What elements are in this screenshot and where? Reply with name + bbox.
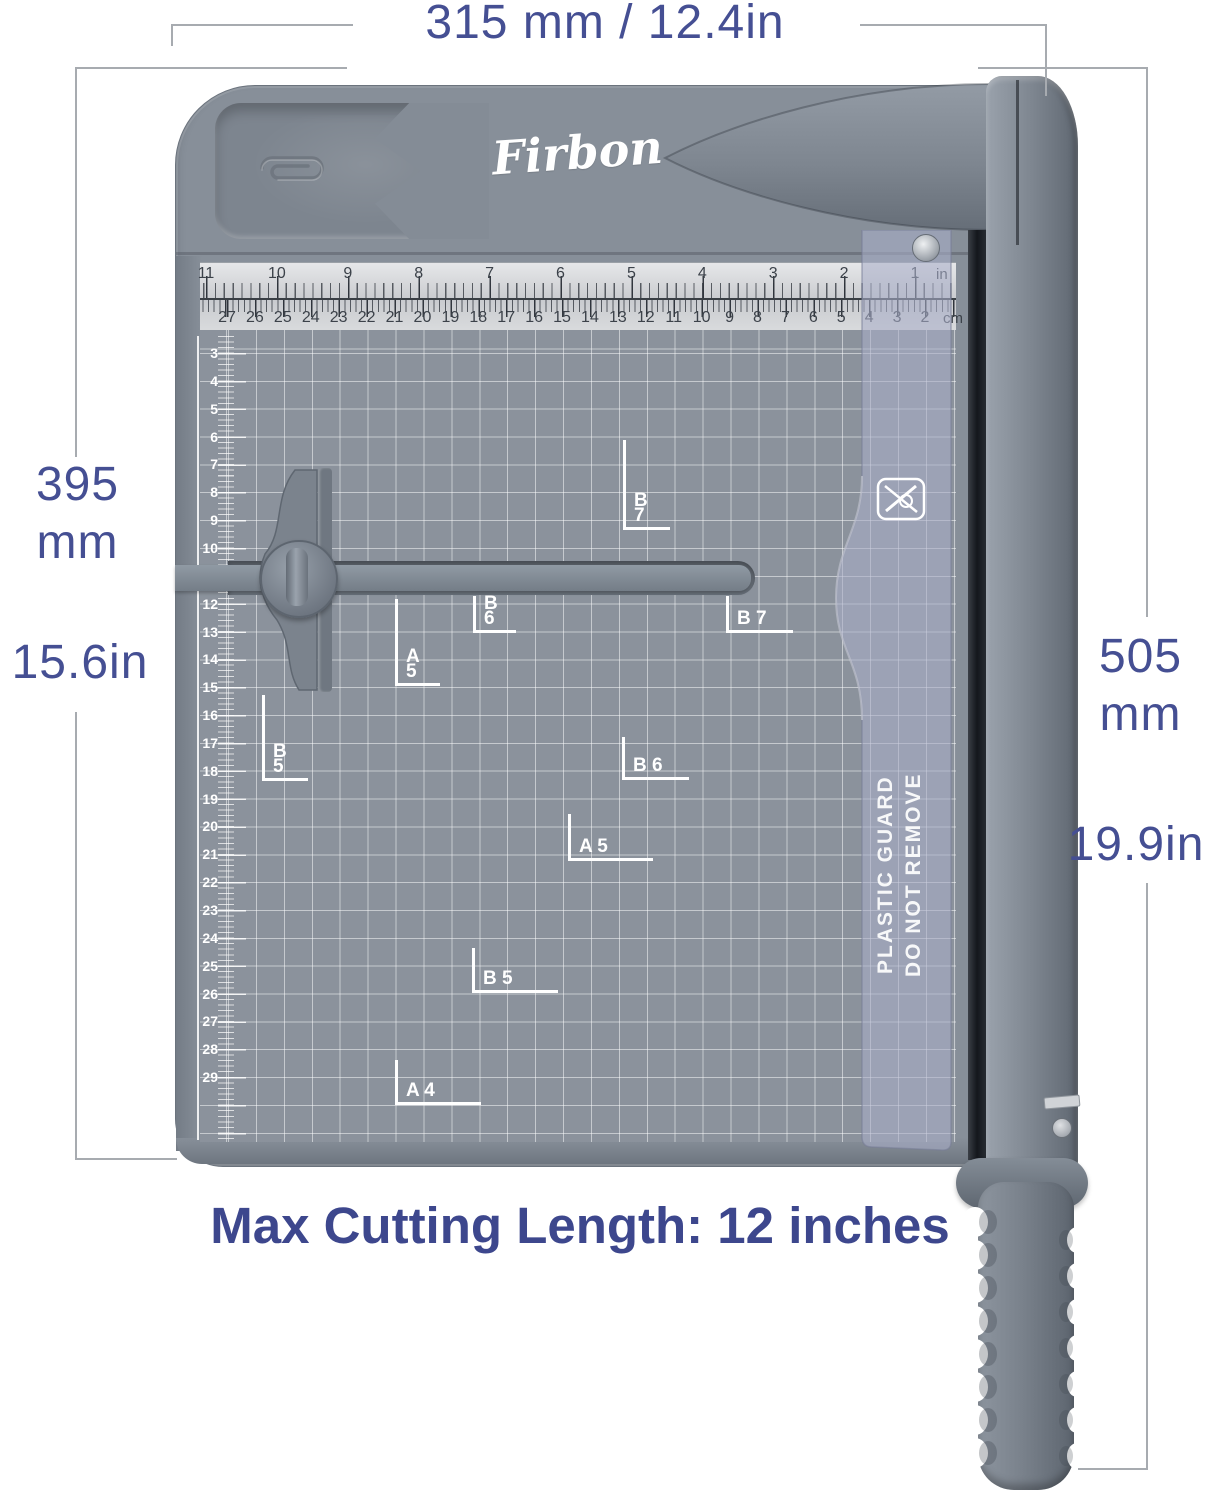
top-dim-line-left [171,24,353,26]
inch-number: 5 [627,265,636,283]
side-ruler-number: 22 [194,874,218,890]
inch-number: 4 [698,265,707,283]
side-ruler-number: 10 [194,540,218,556]
side-ruler-number: 25 [194,958,218,974]
size-mark-b7-stacked: B7 [623,440,670,530]
cm-number: 15 [553,309,571,327]
paperclip-icon [248,144,340,192]
size-mark-b7-inline: B 7 [726,596,793,633]
side-ruler-number: 5 [194,401,218,417]
side-ruler-number: 15 [194,679,218,695]
size-mark-a5-inline: A 5 [568,814,653,861]
side-ruler-number: 19 [194,791,218,807]
side-ruler-minor-ticks [218,336,234,1142]
inch-number: 7 [485,265,494,283]
side-ruler-number: 12 [194,596,218,612]
size-mark-b6-inline: B 6 [622,737,689,780]
side-ruler-number: 18 [194,763,218,779]
side-ruler-number: 26 [194,986,218,1002]
inch-number: 3 [769,265,778,283]
inch-number: 11 [198,265,215,283]
side-ruler-number: 28 [194,1041,218,1057]
right-dim-tick-bottom [1078,1468,1148,1470]
guard-screw [912,234,940,262]
cutting-arm[interactable] [986,76,1078,1171]
guard-warning-line2: PLASTIC GUARD [874,645,898,1105]
brand-logo: Firbon [490,120,653,185]
cm-number: 16 [525,309,543,327]
right-height-in-label: 19.9in [1055,816,1217,874]
cm-number: 26 [246,309,264,327]
hinge-cover [655,78,990,238]
top-dim-tick-right [1045,24,1047,96]
cm-number: 6 [809,309,818,327]
top-extension-line-right [978,67,1147,69]
cm-number: 12 [637,309,655,327]
cm-number: 22 [358,309,376,327]
top-extension-line-left [75,67,347,69]
side-ruler-number: 23 [194,902,218,918]
cm-number: 11 [665,309,682,327]
side-ruler-number: 3 [194,345,218,361]
left-height-mm-value: 395 [5,456,150,514]
right-dim-line-upper [1146,67,1148,617]
right-height-mm-unit: mm [1068,686,1213,744]
side-ruler-number: 4 [194,373,218,389]
right-height-mm-label: 505 mm [1068,628,1213,744]
knob-grip [286,548,308,606]
cm-number: 7 [781,309,790,327]
side-ruler-number: 17 [194,735,218,751]
side-ruler-number: 27 [194,1013,218,1029]
side-ruler-number: 24 [194,930,218,946]
size-mark-a5-stacked: A5 [395,599,440,686]
size-mark-b6-stacked: B6 [473,596,516,633]
product-dimension-diagram: Firbon 1110987654321in 27262524232221201… [0,0,1217,1500]
cm-number: 13 [609,309,627,327]
cm-number: 18 [469,309,487,327]
left-height-mm-label: 395 mm [5,456,150,572]
cm-number: 10 [693,309,711,327]
side-ruler-number: 8 [194,484,218,500]
cm-number: 27 [218,309,236,327]
side-ruler-number: 7 [194,456,218,472]
latch-bolt [1052,1118,1072,1138]
arm-seam [1016,80,1019,245]
cm-number: 8 [753,309,762,327]
right-height-mm-value: 505 [1068,628,1213,686]
cm-number: 19 [441,309,459,327]
cm-number: 23 [330,309,348,327]
left-height-in-label: 15.6in [0,634,160,692]
handle-finger-grooves [950,1175,1100,1500]
inch-number: 6 [556,265,565,283]
side-ruler-number: 29 [194,1069,218,1085]
side-ruler-number: 20 [194,818,218,834]
side-ruler-number: 9 [194,512,218,528]
size-mark-a4-inline: A 4 [395,1060,481,1105]
inch-number: 8 [414,265,423,283]
side-ruler-number: 21 [194,846,218,862]
guide-knob[interactable] [260,540,338,618]
left-height-mm-unit: mm [5,514,150,572]
cm-number: 14 [581,309,599,327]
cm-number: 17 [497,309,515,327]
blade-slot [968,230,988,1160]
top-dim-tick-left [171,24,173,46]
inch-number: 10 [268,265,286,283]
top-width-label: 315 mm / 12.4in [330,0,880,52]
side-ruler-number: 13 [194,624,218,640]
cm-number: 24 [302,309,320,327]
size-mark-b5-inline: B 5 [472,948,558,993]
cm-number: 21 [386,309,404,327]
left-dim-line-lower [75,712,77,1160]
side-ruler-number: 14 [194,651,218,667]
cm-number: 9 [725,309,734,327]
no-touch-blade-warning-icon [876,477,926,521]
top-dim-line-right [860,24,1046,26]
inch-number: 9 [343,265,352,283]
left-dim-tick-bottom [75,1158,177,1160]
cm-number: 25 [274,309,292,327]
max-cutting-length-caption: Max Cutting Length: 12 inches [200,1196,960,1255]
side-ruler-number: 16 [194,707,218,723]
size-mark-b5-stacked: B5 [262,695,308,781]
left-dim-line-upper [75,67,77,457]
right-dim-line-lower [1146,883,1148,1470]
guard-warning-line1: DO NOT REMOVE [902,645,926,1105]
side-ruler-number: 6 [194,429,218,445]
cm-number: 20 [414,309,432,327]
